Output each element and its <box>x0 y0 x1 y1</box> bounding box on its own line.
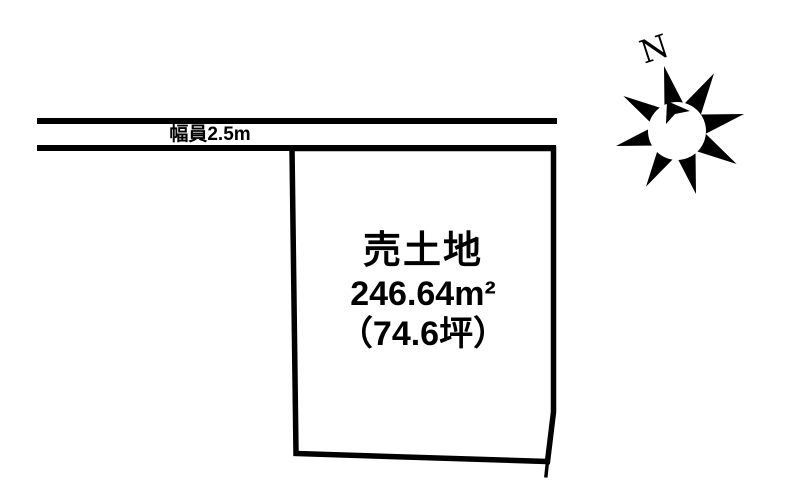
compass-rose-icon: N <box>616 27 744 194</box>
plot-sale-label: 売土地 <box>292 228 554 274</box>
plot-area-tsubo: （74.6坪） <box>292 314 554 354</box>
plot-label-block: 売土地 246.64m² （74.6坪） <box>292 228 554 354</box>
site-plan-diagram: N 幅員2.5m 売土地 246.64m² （74.6坪） <box>0 0 800 498</box>
boundary-line-tail <box>546 462 548 478</box>
plot-area-sqm: 246.64m² <box>292 274 554 314</box>
compass-north-label: N <box>635 27 673 72</box>
road-width-label: 幅員2.5m <box>120 125 300 145</box>
